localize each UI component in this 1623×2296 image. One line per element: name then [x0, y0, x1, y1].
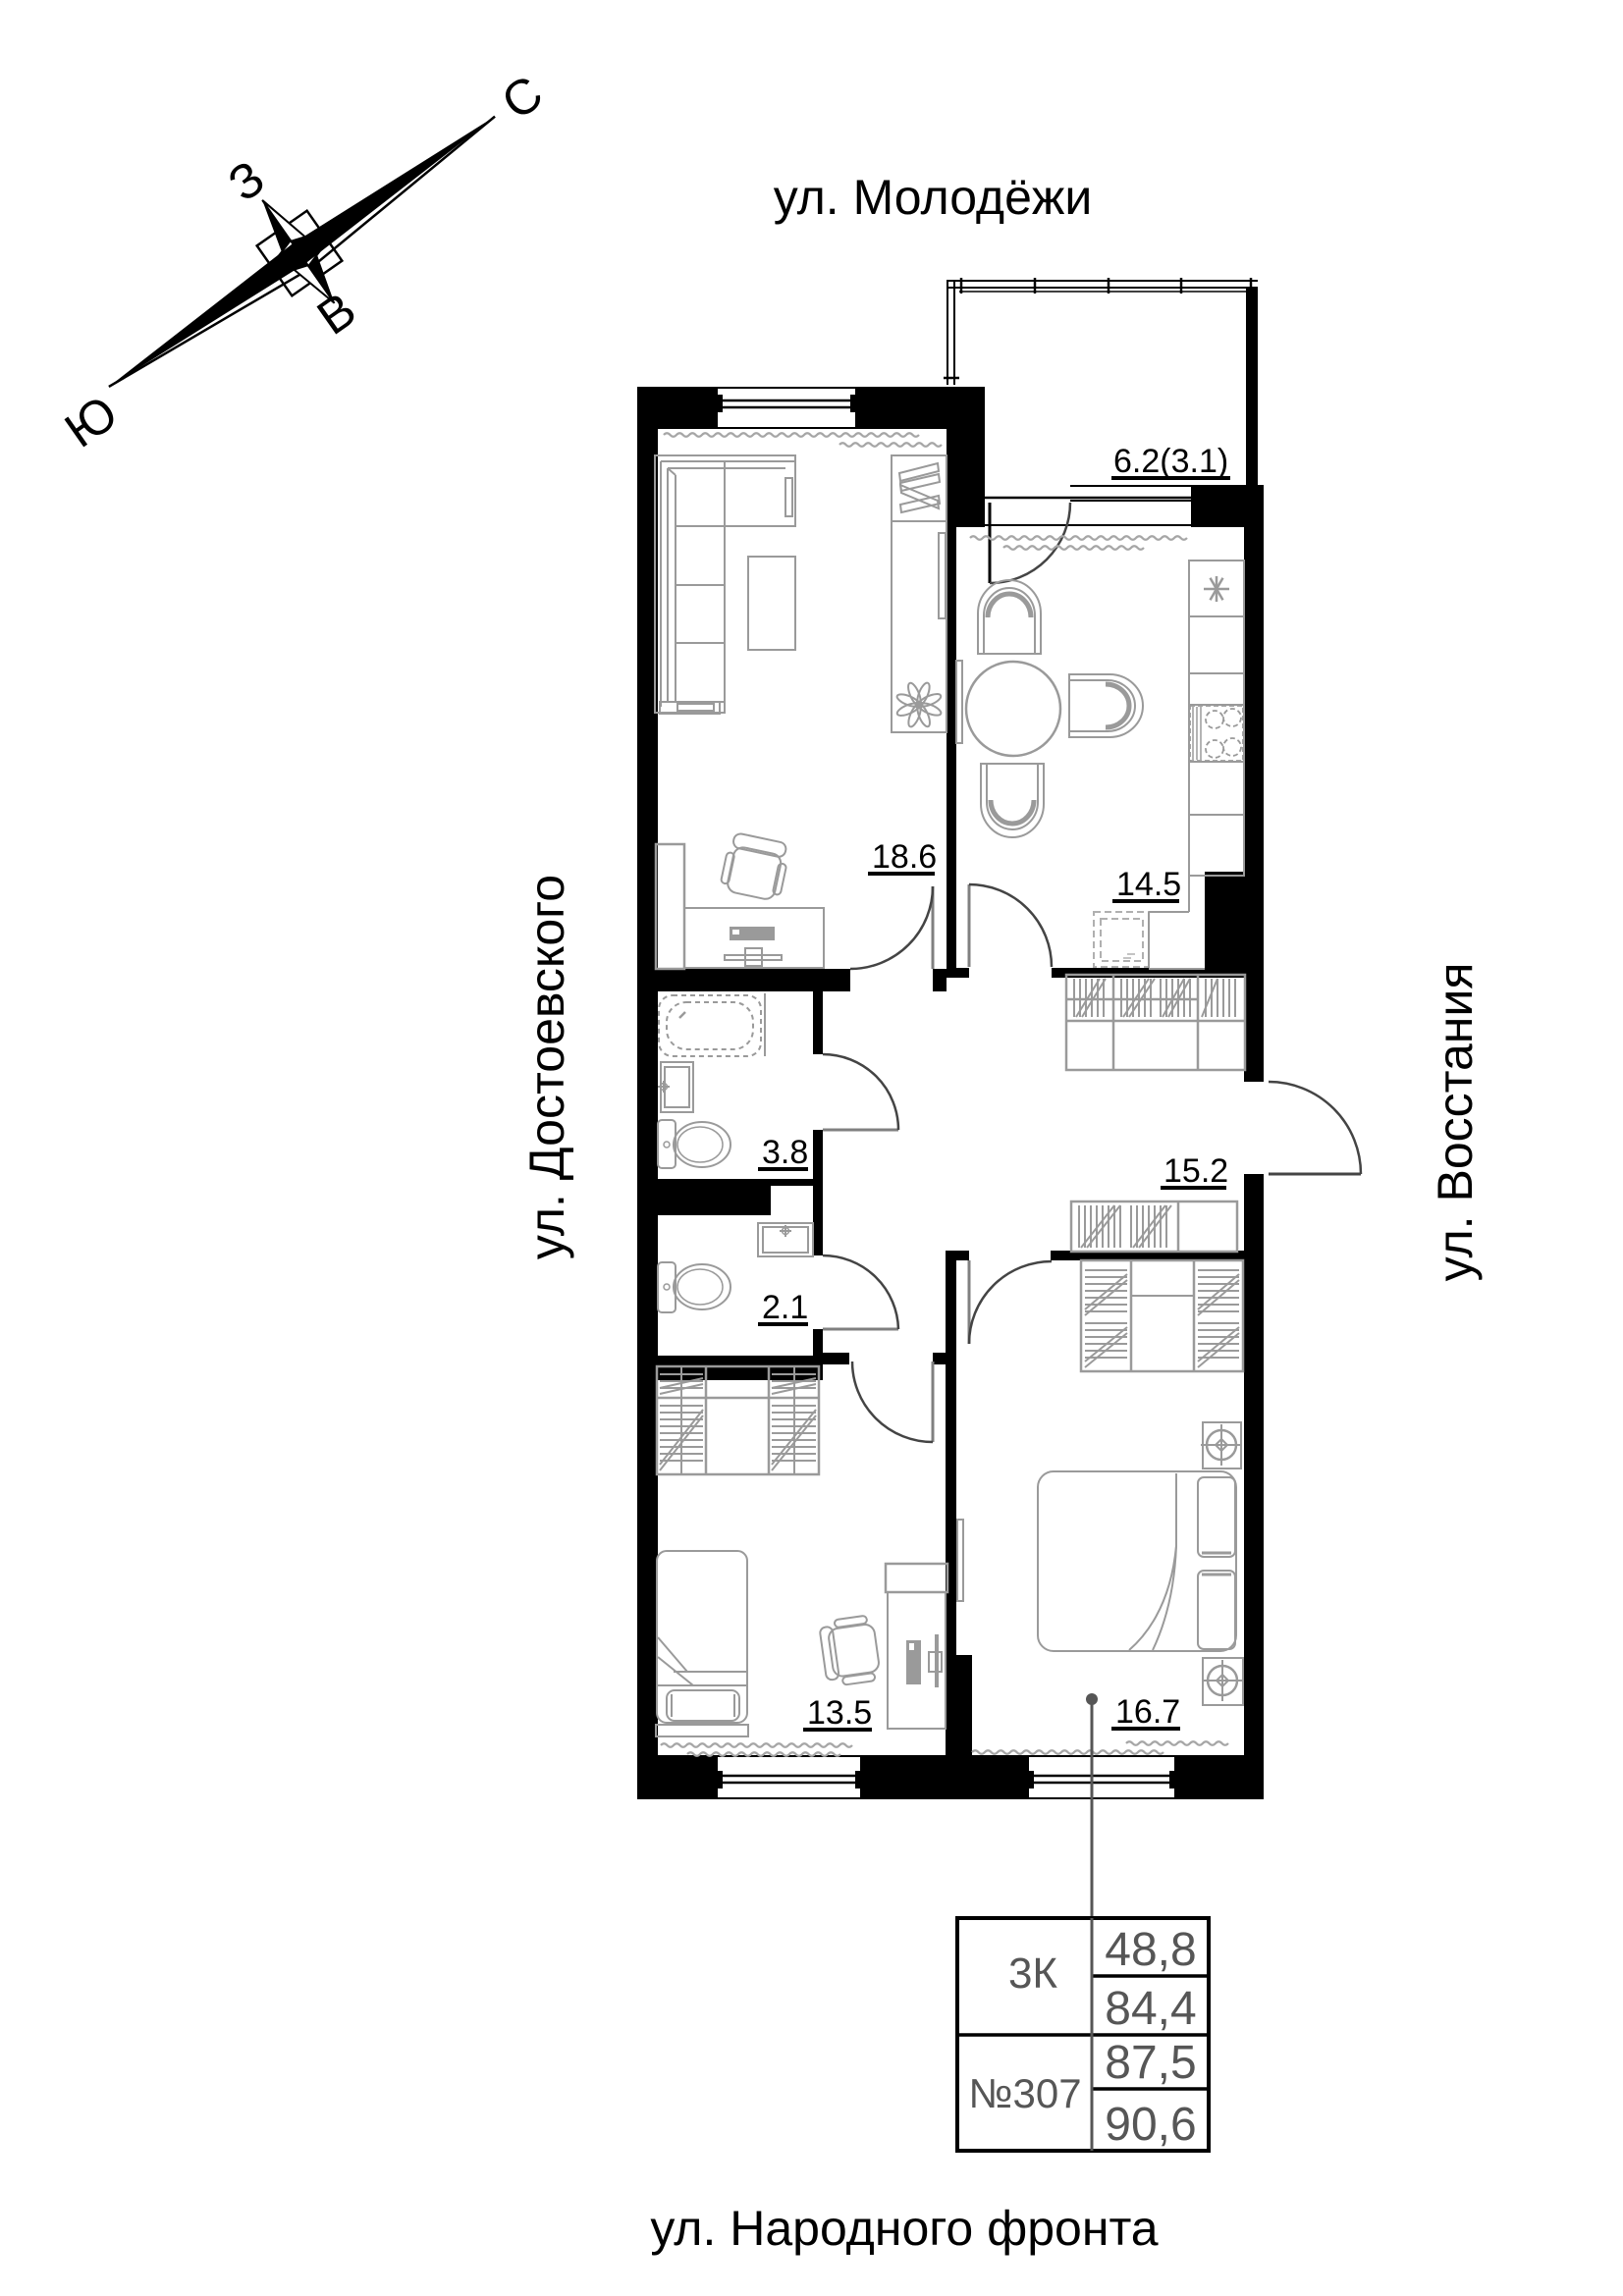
svg-text:С: С — [492, 65, 553, 131]
svg-text:48,8: 48,8 — [1105, 1924, 1196, 1976]
svg-text:16.7: 16.7 — [1115, 1693, 1180, 1731]
svg-text:ул. Молодёжи: ул. Молодёжи — [774, 170, 1093, 225]
svg-text:87,5: 87,5 — [1105, 2037, 1196, 2089]
svg-text:6.2(3.1): 6.2(3.1) — [1113, 443, 1228, 480]
svg-text:14.5: 14.5 — [1116, 866, 1181, 903]
svg-text:90,6: 90,6 — [1105, 2099, 1196, 2151]
svg-text:Ю: Ю — [55, 385, 128, 458]
svg-text:3.8: 3.8 — [762, 1134, 808, 1171]
svg-text:№307: №307 — [968, 2070, 1081, 2116]
svg-text:ул. Восстания: ул. Восстания — [1428, 963, 1483, 1282]
svg-text:3К: 3К — [1008, 1949, 1057, 1998]
svg-text:В: В — [307, 282, 365, 346]
svg-text:15.2: 15.2 — [1163, 1152, 1228, 1190]
svg-text:2.1: 2.1 — [762, 1289, 808, 1326]
svg-text:18.6: 18.6 — [872, 838, 937, 876]
svg-text:ул. Достоевского: ул. Достоевского — [519, 875, 574, 1259]
svg-text:13.5: 13.5 — [807, 1694, 872, 1732]
svg-text:84,4: 84,4 — [1105, 1983, 1196, 2035]
svg-text:ул. Народного фронта: ул. Народного фронта — [650, 2201, 1158, 2256]
